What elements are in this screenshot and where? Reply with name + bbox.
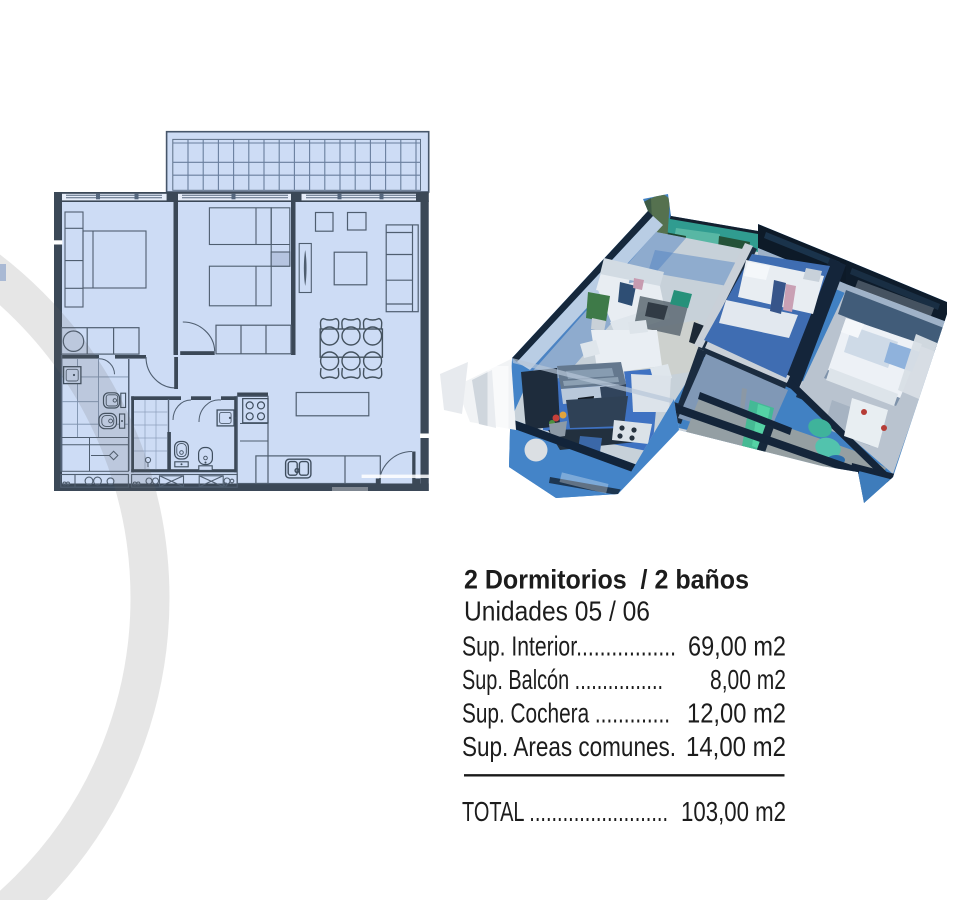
svg-text:69,00 m2: 69,00 m2: [688, 631, 786, 662]
svg-text:TOTAL ........................: TOTAL .........................: [462, 796, 668, 827]
svg-text:14,00 m2: 14,00 m2: [686, 731, 786, 762]
svg-text:103,00 m2: 103,00 m2: [681, 796, 786, 827]
svg-text:Sup. Cochera .............: Sup. Cochera .............: [462, 698, 670, 729]
svg-text:Sup. Interior.................: Sup. Interior.................: [462, 631, 676, 662]
svg-text:2 Dormitorios / 2 baños: 2 Dormitorios / 2 baños: [464, 565, 749, 595]
svg-text:Unidades 05 / 06: Unidades 05 / 06: [464, 596, 650, 627]
svg-text:8,00 m2: 8,00 m2: [710, 664, 786, 695]
svg-text:Sup. Areas comunes.: Sup. Areas comunes.: [462, 731, 676, 762]
svg-text:12,00 m2: 12,00 m2: [687, 698, 786, 729]
svg-text:Sup. Balcón ................: Sup. Balcón ................: [462, 664, 663, 695]
